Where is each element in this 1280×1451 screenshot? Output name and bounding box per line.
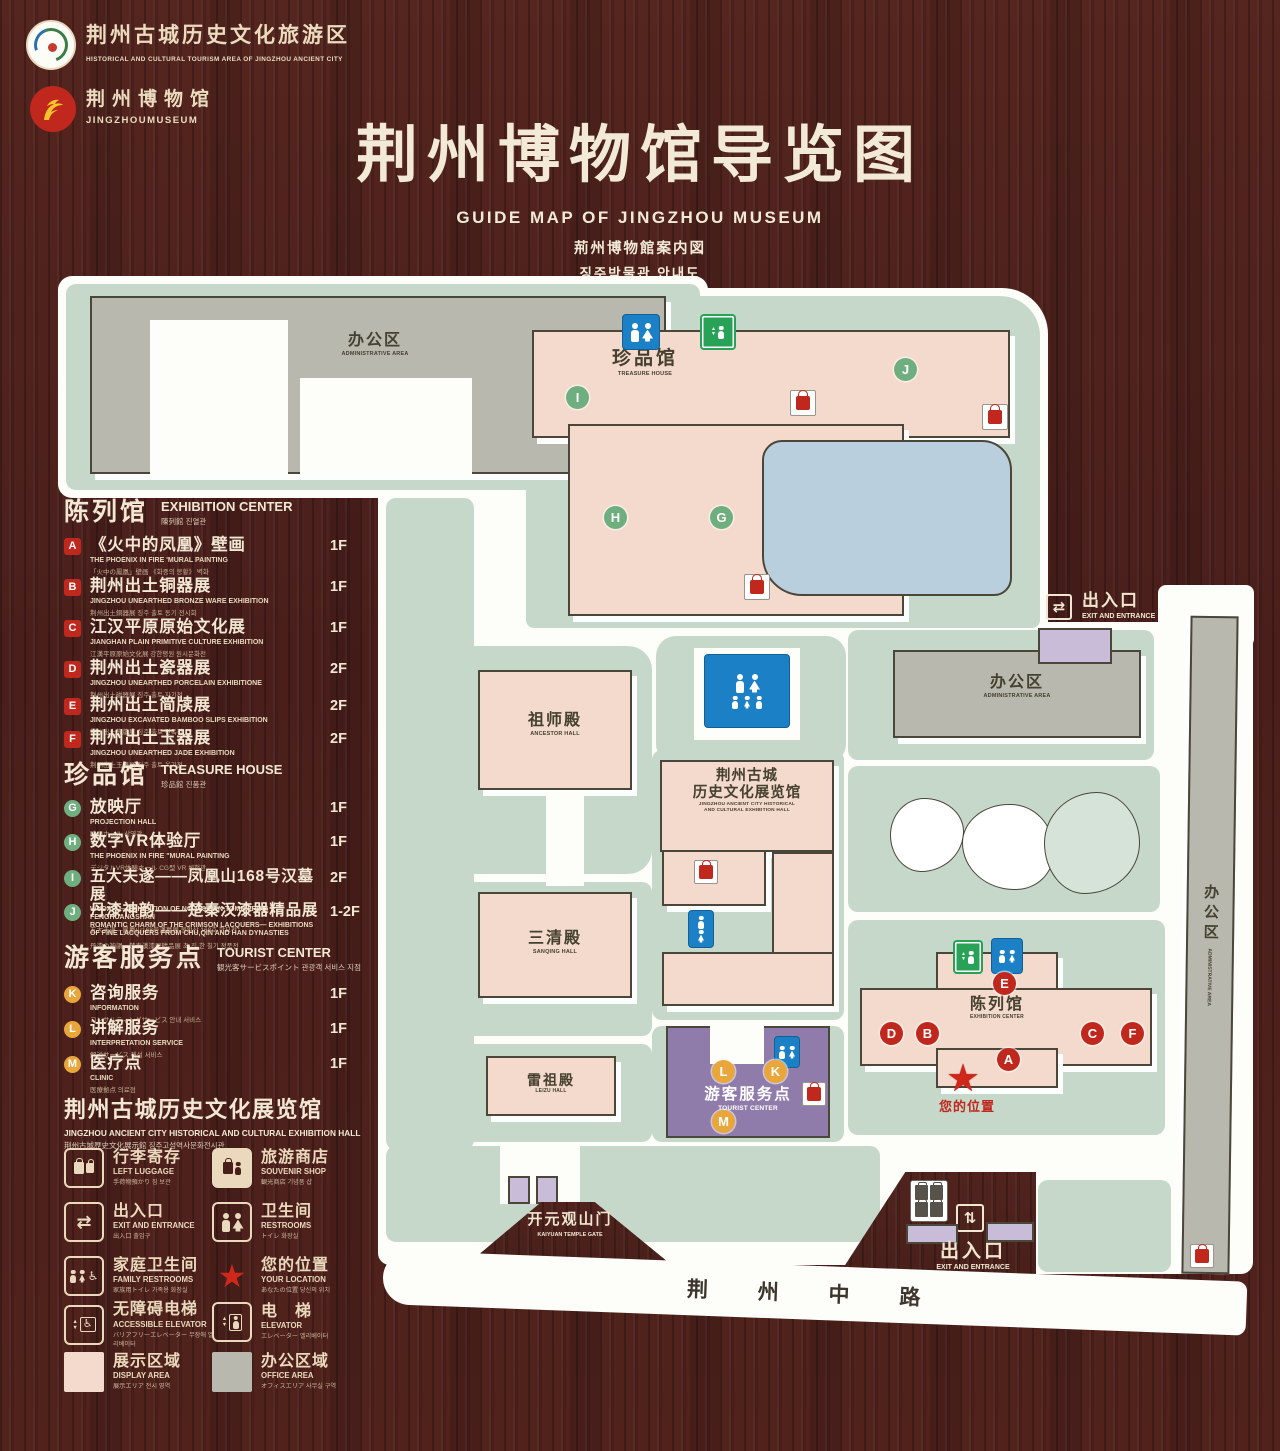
brand-museum: 荆州博物馆 JINGZHOUMUSEUM — [30, 86, 216, 132]
item-floor: 1F — [330, 579, 364, 595]
label-leizu-en: LEIZU HALL — [486, 1089, 616, 1095]
page-title: 荆州博物馆导览图 — [285, 104, 995, 194]
map-marker-i: I — [566, 386, 589, 409]
item-sub: 江漢平原原始文化展 강한평원 원시문화전 — [90, 648, 321, 658]
badge-k: K — [64, 986, 81, 1003]
item-zh: 讲解服务 — [90, 1019, 159, 1037]
legend-sub: 家族用トイレ 가족용 화장실 — [113, 1285, 198, 1294]
section-exhibition-zh: 陈列馆 — [64, 500, 148, 525]
label-gate-zh: 开元观山门 — [480, 1212, 660, 1229]
title-block: 荆州博物馆导览图 GUIDE MAP OF JINGZHOU MUSEUM 荊州… — [285, 104, 995, 282]
brand2-zh: 荆州博物馆 — [86, 89, 216, 110]
item-zh: 荆州出土铜器展 — [90, 577, 211, 595]
list-item-m: M 医疗点CLINIC医療拠点 의료점 1F — [64, 1054, 364, 1094]
item-floor: 1F — [330, 538, 364, 554]
list-item-h: H 数字VR体验厅THE PHOENIX IN FIRE "MURAL PAIN… — [64, 832, 364, 872]
legend-office-area: 办公区域OFFICE AREAオフィスエリア 사무실 구역 — [212, 1352, 362, 1392]
label-admin-tl-zh: 办公区 — [295, 332, 455, 350]
label-exhibition-zh: 陈列馆 — [940, 996, 1054, 1014]
section-treasure-en: TREASURE HOUSE — [161, 763, 282, 777]
map-marker-f: F — [1121, 1022, 1144, 1045]
legend-en: FAMILY RESTROOMS — [113, 1275, 198, 1284]
label-admin-r-zh: 办公区 — [905, 674, 1129, 692]
item-zh: 放映厅 — [90, 798, 142, 816]
souvenir-shop-icon — [694, 860, 718, 884]
legend-en: ACCESSIBLE ELEVATOR — [113, 1320, 214, 1329]
souvenir-shop-icon — [212, 1148, 252, 1188]
list-item-a: A 《火中的凤凰》壁画THE PHOENIX IN FIRE 'MURAL PA… — [64, 536, 364, 576]
list-item-d: D 荆州出土瓷器展JINGZHOU UNEARTHED PORCELAIN EX… — [64, 659, 364, 699]
label-sanqing-zh: 三清殿 — [480, 930, 630, 948]
label-tourist-en: TOURIST CENTER — [668, 1105, 828, 1112]
legend-zh: 旅游商店 — [261, 1150, 329, 1167]
section-treasure-heading: 珍品馆 TREASURE HOUSE 珍品館 진품관 — [64, 763, 374, 790]
display-area-swatch — [64, 1352, 104, 1392]
map-marker-k: K — [764, 1060, 787, 1083]
list-item-j: J 丹漆神韵——楚秦汉漆器精品展ROMANTIC CHARM OF THE CR… — [64, 902, 364, 950]
path-cut — [150, 320, 288, 474]
item-floor: 1F — [330, 1021, 364, 1037]
label-hall-zh2: 历史文化展览馆 — [662, 785, 832, 802]
legend-zh: 展示区域 — [113, 1354, 181, 1371]
label-admin-r-en: ADMINISTRATIVE AREA — [905, 693, 1129, 699]
section-hall-heading: 荆州古城历史文化展览馆 JINGZHOU ANCIENT CITY HISTOR… — [64, 1092, 376, 1151]
legend-zh: 办公区域 — [261, 1354, 336, 1371]
brand1-zh: 荆州古城历史文化旅游区 — [86, 24, 350, 47]
label-exhibition-en: EXHIBITION CENTER — [940, 1015, 1054, 1021]
label-tourist-zh: 游客服务点 — [668, 1086, 828, 1104]
badge-l: L — [64, 1021, 81, 1038]
item-zh: 咨询服务 — [90, 984, 159, 1002]
accessible-elevator-icon: ▲▼♿ — [64, 1305, 104, 1345]
label-admin-right: 办公区 ADMINISTRATIVE AREA — [905, 674, 1129, 700]
item-en: JINGZHOU UNEARTHED BRONZE WARE EXHIBITIO… — [90, 598, 321, 607]
legend-zh: 家庭卫生间 — [113, 1258, 198, 1275]
label-leizu: 雷祖殿 LEIZU HALL — [486, 1072, 616, 1095]
map-marker-g: G — [710, 506, 733, 529]
item-floor: 1F — [330, 834, 364, 850]
legend-sub: 展示エリア 전시 영역 — [113, 1381, 181, 1390]
badge-g: G — [64, 800, 81, 817]
item-en: JINGZHOU EXCAVATED BAMBOO SLIPS EXHIBITI… — [90, 717, 321, 726]
badge-m: M — [64, 1056, 81, 1073]
badge-h: H — [64, 834, 81, 851]
elevator-icon: ▲▼ — [700, 314, 736, 350]
item-zh: 荆州出土玉器展 — [90, 729, 211, 747]
item-floor: 1F — [330, 620, 364, 636]
left-luggage-icon — [910, 1180, 948, 1222]
legend-zh: 无障碍电梯 — [113, 1302, 214, 1319]
page-subtitle-en: GUIDE MAP OF JINGZHOU MUSEUM — [285, 208, 995, 228]
elevator-icon: ▲▼ — [212, 1302, 252, 1342]
label-exhibition: 陈列馆 EXHIBITION CENTER — [940, 996, 1054, 1021]
badge-b: B — [64, 579, 81, 596]
souvenir-shop-icon — [744, 574, 770, 600]
item-sub: 「火中の鳳凰」壁画 《화중의 봉황》 벽화 — [90, 566, 321, 576]
label-your-location: 您的位置 — [922, 1100, 1012, 1114]
label-hall: 荆州古城 历史文化展览馆 JINGZHOU ANCIENT CITY HISTO… — [662, 768, 832, 813]
badge-e: E — [64, 698, 81, 715]
pond — [762, 440, 1012, 596]
your-location-star-icon: ★ — [946, 1060, 980, 1098]
item-en: THE PHOENIX IN FIRE "MURAL PAINTING — [90, 853, 321, 862]
legend-sub: 手荷物預かり 짐 보관 — [113, 1177, 181, 1186]
legend-exit-entrance: ⇄ 出入口EXIT AND ENTRANCE出入口 출입구 — [64, 1202, 214, 1242]
label-treasure: 珍品馆 TREASURE HOUSE — [560, 348, 730, 377]
section-exhibition-heading: 陈列馆 EXHIBITION CENTER 陳列館 진열관 — [64, 500, 374, 527]
item-floor: 2F — [330, 698, 364, 714]
guide-map-poster: 荆州古城历史文化旅游区 HISTORICAL AND CULTURAL TOUR… — [0, 0, 1280, 1451]
list-item-b: B 荆州出土铜器展JINGZHOU UNEARTHED BRONZE WARE … — [64, 577, 364, 617]
legend-your-location: ★ 您的位置YOUR LOCATIONあなたの位置 당신의 위치 — [212, 1256, 362, 1296]
exit-entrance-icon: ⇄ — [1046, 594, 1072, 620]
item-floor: 1F — [330, 1056, 364, 1072]
legend-zh: 行李寄存 — [113, 1150, 181, 1167]
item-en: INTERPRETATION SERVICE — [90, 1040, 321, 1049]
section-treasure-sub: 珍品館 진품관 — [161, 779, 282, 790]
item-zh: 江汉平原原始文化展 — [90, 618, 246, 636]
elevator-icon: ▲▼ — [953, 940, 983, 974]
your-location-star-icon: ★ — [212, 1256, 252, 1296]
legend-zh: 电 梯 — [261, 1304, 328, 1321]
gate-block — [986, 1222, 1034, 1242]
restroom-icon — [212, 1202, 252, 1242]
restroom-family-icon — [704, 654, 790, 728]
legend-souvenir-shop: 旅游商店SOUVENIR SHOP観光商店 기념품 샵 — [212, 1148, 362, 1188]
restroom-icon — [622, 314, 660, 350]
label-leizu-zh: 雷祖殿 — [486, 1072, 616, 1088]
brand2-en: JINGZHOUMUSEUM — [86, 115, 198, 126]
item-en: ROMANTIC CHARM OF THE CRIMSON LACQUERS— … — [90, 922, 321, 940]
path-cut — [300, 378, 472, 474]
map-marker-h: H — [604, 506, 627, 529]
label-treasure-en: TREASURE HOUSE — [560, 371, 730, 377]
legend-sub: オフィスエリア 사무실 구역 — [261, 1381, 336, 1390]
legend-sub: あなたの位置 당신의 위치 — [261, 1285, 330, 1294]
map-marker-e: E — [993, 972, 1016, 995]
badge-c: C — [64, 620, 81, 637]
badge-d: D — [64, 661, 81, 678]
legend-left-luggage: 行李寄存LEFT LUGGAGE手荷物預かり 짐 보관 — [64, 1148, 214, 1188]
legend-zh: 您的位置 — [261, 1258, 330, 1275]
map-marker-j: J — [894, 358, 917, 381]
label-exit-bottom-zh: 出入口 — [908, 1242, 1038, 1263]
item-zh: 数字VR体验厅 — [90, 832, 201, 850]
label-sanqing-en: SANQING HALL — [480, 949, 630, 955]
map-marker-l: L — [712, 1060, 735, 1083]
path-cut — [546, 792, 584, 886]
item-floor: 2F — [330, 661, 364, 677]
item-floor: 2F — [330, 870, 364, 886]
green-bottom-right — [1038, 1180, 1171, 1272]
item-zh: 荆州出土瓷器展 — [90, 659, 211, 677]
item-floor: 1F — [330, 986, 364, 1002]
left-luggage-icon — [64, 1148, 104, 1188]
legend-en: RESTROOMS — [261, 1221, 312, 1230]
exit-entrance-icon: ⇅ — [956, 1204, 984, 1232]
building-treasure-top — [532, 330, 1010, 438]
badge-j: J — [64, 904, 81, 921]
legend-accessible-elevator: ▲▼♿ 无障碍电梯ACCESSIBLE ELEVATORバリアフリーエレベーター… — [64, 1302, 214, 1348]
item-sub: 荆州出土銅器展 징주 출토 동기 전시회 — [90, 607, 321, 617]
brand1-en: HISTORICAL AND CULTURAL TOURISM AREA OF … — [86, 56, 343, 63]
item-zh: 荆州出土简牍展 — [90, 696, 211, 714]
legend-elevator: ▲▼ 电 梯ELEVATORエレベーター 엘리베이터 — [212, 1302, 362, 1342]
legend-en: SOUVENIR SHOP — [261, 1167, 329, 1176]
restroom-icon — [688, 910, 714, 948]
label-admin-top-left: 办公区 ADMINISTRATIVE AREA — [295, 332, 455, 358]
souvenir-shop-icon — [982, 404, 1008, 430]
map-marker-d: D — [880, 1022, 903, 1045]
gate-post — [536, 1176, 558, 1204]
legend-sub: エレベーター 엘리베이터 — [261, 1331, 328, 1340]
legend-sub: トイレ 화장실 — [261, 1231, 312, 1240]
label-ancestor: 祖师殿 ANCESTOR HALL — [480, 712, 630, 738]
label-road: 荆 州 中 路 — [686, 1273, 942, 1312]
list-item-c: C 江汉平原原始文化展JIANGHAN PLAIN PRIMITIVE CULT… — [64, 618, 364, 658]
item-en: THE PHOENIX IN FIRE 'MURAL PAINTING — [90, 557, 321, 566]
map-marker-m: M — [712, 1110, 735, 1133]
label-ancestor-zh: 祖师殿 — [480, 712, 630, 730]
item-floor: 2F — [330, 731, 364, 747]
item-en: INFORMATION — [90, 1005, 321, 1014]
section-hall-zh: 荆州古城历史文化展览馆 — [64, 1092, 376, 1124]
item-en: JINGZHOU UNEARTHED PORCELAIN EXHIBITIONE — [90, 680, 321, 689]
item-zh: 丹漆神韵——楚秦汉漆器精品展 — [90, 902, 318, 919]
label-admin-tl-en: ADMINISTRATIVE AREA — [295, 351, 455, 357]
legend-family-restrooms: ♿ 家庭卫生间FAMILY RESTROOMS家族用トイレ 가족용 화장실 — [64, 1256, 214, 1296]
item-en: JIANGHAN PLAIN PRIMITIVE CULTURE EXHIBIT… — [90, 639, 321, 648]
tourism-area-logo-icon — [26, 20, 76, 70]
office-area-swatch — [212, 1352, 252, 1392]
brand-tourism-area: 荆州古城历史文化旅游区 HISTORICAL AND CULTURAL TOUR… — [26, 20, 350, 70]
label-sanqing: 三清殿 SANQING HALL — [480, 930, 630, 956]
legend-en: LEFT LUGGAGE — [113, 1167, 181, 1176]
label-exit-top-en: EXIT AND ENTRANCE — [1082, 613, 1155, 621]
legend-zh: 出入口 — [113, 1204, 195, 1221]
item-floor: 1-2F — [330, 904, 364, 920]
section-hall-en: JINGZHOU ANCIENT CITY HISTORICAL AND CUL… — [64, 1128, 376, 1138]
legend-zh: 卫生间 — [261, 1204, 312, 1221]
legend-en: ELEVATOR — [261, 1321, 328, 1330]
label-hall-en2: AND CULTURAL EXHIBITION HALL — [662, 808, 832, 814]
badge-f: F — [64, 731, 81, 748]
legend-en: YOUR LOCATION — [261, 1275, 330, 1284]
label-treasure-zh: 珍品馆 — [560, 348, 730, 370]
item-zh: 医疗点 — [90, 1054, 142, 1072]
item-en: CLINIC — [90, 1075, 321, 1084]
page-subtitle-ja: 荊州博物館案内図 — [285, 237, 995, 258]
souvenir-shop-icon — [790, 390, 816, 416]
legend-en: EXIT AND ENTRANCE — [113, 1221, 195, 1230]
family-restroom-icon: ♿ — [64, 1256, 104, 1296]
label-ancestor-en: ANCESTOR HALL — [480, 731, 630, 737]
gate-post — [508, 1176, 530, 1204]
map-marker-c: C — [1081, 1022, 1104, 1045]
badge-i: I — [64, 870, 81, 887]
section-tourist-zh: 游客服务点 — [64, 946, 204, 971]
section-exhibition-en: EXHIBITION CENTER — [161, 500, 292, 514]
legend-en: OFFICE AREA — [261, 1371, 336, 1380]
badge-a: A — [64, 538, 81, 555]
section-tourist-heading: 游客服务点 TOURIST CENTER 観光客サービスポイント 관광객 서비스… — [64, 946, 374, 973]
path-cut — [710, 1022, 764, 1064]
building-hall-bottom — [662, 952, 834, 1006]
legend-en: DISPLAY AREA — [113, 1371, 181, 1380]
label-hall-zh1: 荆州古城 — [662, 768, 832, 785]
section-tourist-en: TOURIST CENTER — [217, 946, 361, 960]
item-zh: 《火中的凤凰》壁画 — [90, 536, 246, 554]
label-tourist: 游客服务点 TOURIST CENTER — [668, 1086, 828, 1112]
souvenir-shop-icon — [1190, 1244, 1214, 1268]
exit-entrance-icon: ⇄ — [64, 1202, 104, 1242]
map-marker-a: A — [997, 1048, 1020, 1071]
legend-sub: 観光商店 기념품 샵 — [261, 1177, 329, 1186]
legend-restrooms: 卫生间RESTROOMSトイレ 화장실 — [212, 1202, 362, 1242]
item-zh: 五大夫遂——凤凰山168号汉墓展 — [90, 868, 314, 903]
building-admin-strip: 办公区 ADMINISTRATIVE AREA — [1181, 616, 1238, 1275]
label-gate-en: KAIYUAN TEMPLE GATE — [480, 1232, 660, 1238]
label-exit-top-zh: 出入口 — [1082, 592, 1139, 611]
museum-phoenix-logo-icon — [30, 86, 76, 132]
restroom-icon — [991, 938, 1023, 974]
item-en: JINGZHOU UNEARTHED JADE EXHIBITION — [90, 750, 321, 759]
section-treasure-zh: 珍品馆 — [64, 763, 148, 788]
label-admin-strip-zh: 办公区 — [1202, 884, 1220, 944]
legend-display-area: 展示区域DISPLAY AREA展示エリア 전시 영역 — [64, 1352, 214, 1392]
map-marker-b: B — [916, 1022, 939, 1045]
legend-sub: バリアフリーエレベーター 무장애 엘리베이터 — [113, 1330, 214, 1348]
section-tourist-sub: 観光客サービスポイント 관광객 서비스 지점 — [217, 962, 361, 973]
label-admin-strip-en: ADMINISTRATIVE AREA — [1206, 948, 1213, 1006]
item-floor: 1F — [330, 800, 364, 816]
item-en: PROJECTION HALL — [90, 819, 321, 828]
legend-sub: 出入口 출입구 — [113, 1231, 195, 1240]
section-exhibition-sub: 陳列館 진열관 — [161, 516, 292, 527]
entrance-gate-block — [1038, 628, 1112, 664]
